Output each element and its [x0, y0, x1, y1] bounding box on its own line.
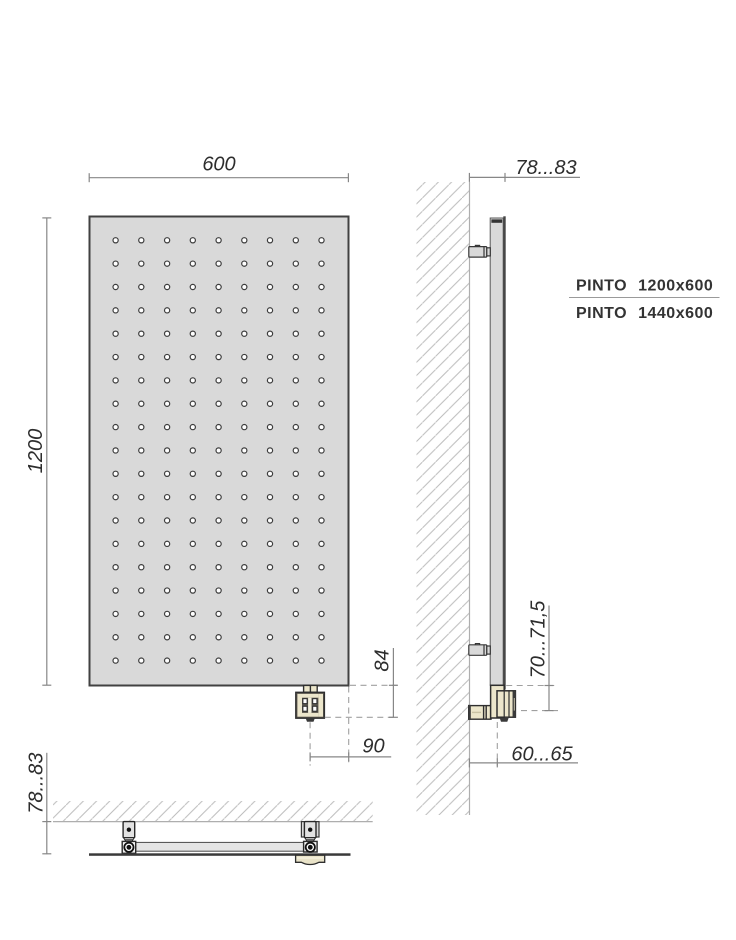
svg-text:60...65: 60...65	[511, 743, 573, 765]
svg-text:78...83: 78...83	[515, 157, 576, 179]
svg-text:70...71,5: 70...71,5	[528, 600, 550, 679]
svg-text:PINTO1200x600: PINTO1200x600	[576, 278, 713, 295]
svg-text:600: 600	[202, 154, 235, 176]
svg-text:84: 84	[372, 649, 394, 671]
svg-text:1200: 1200	[25, 429, 47, 474]
svg-text:PINTO1440x600: PINTO1440x600	[576, 305, 713, 322]
svg-text:78...83: 78...83	[26, 753, 48, 814]
svg-text:90: 90	[362, 736, 384, 758]
